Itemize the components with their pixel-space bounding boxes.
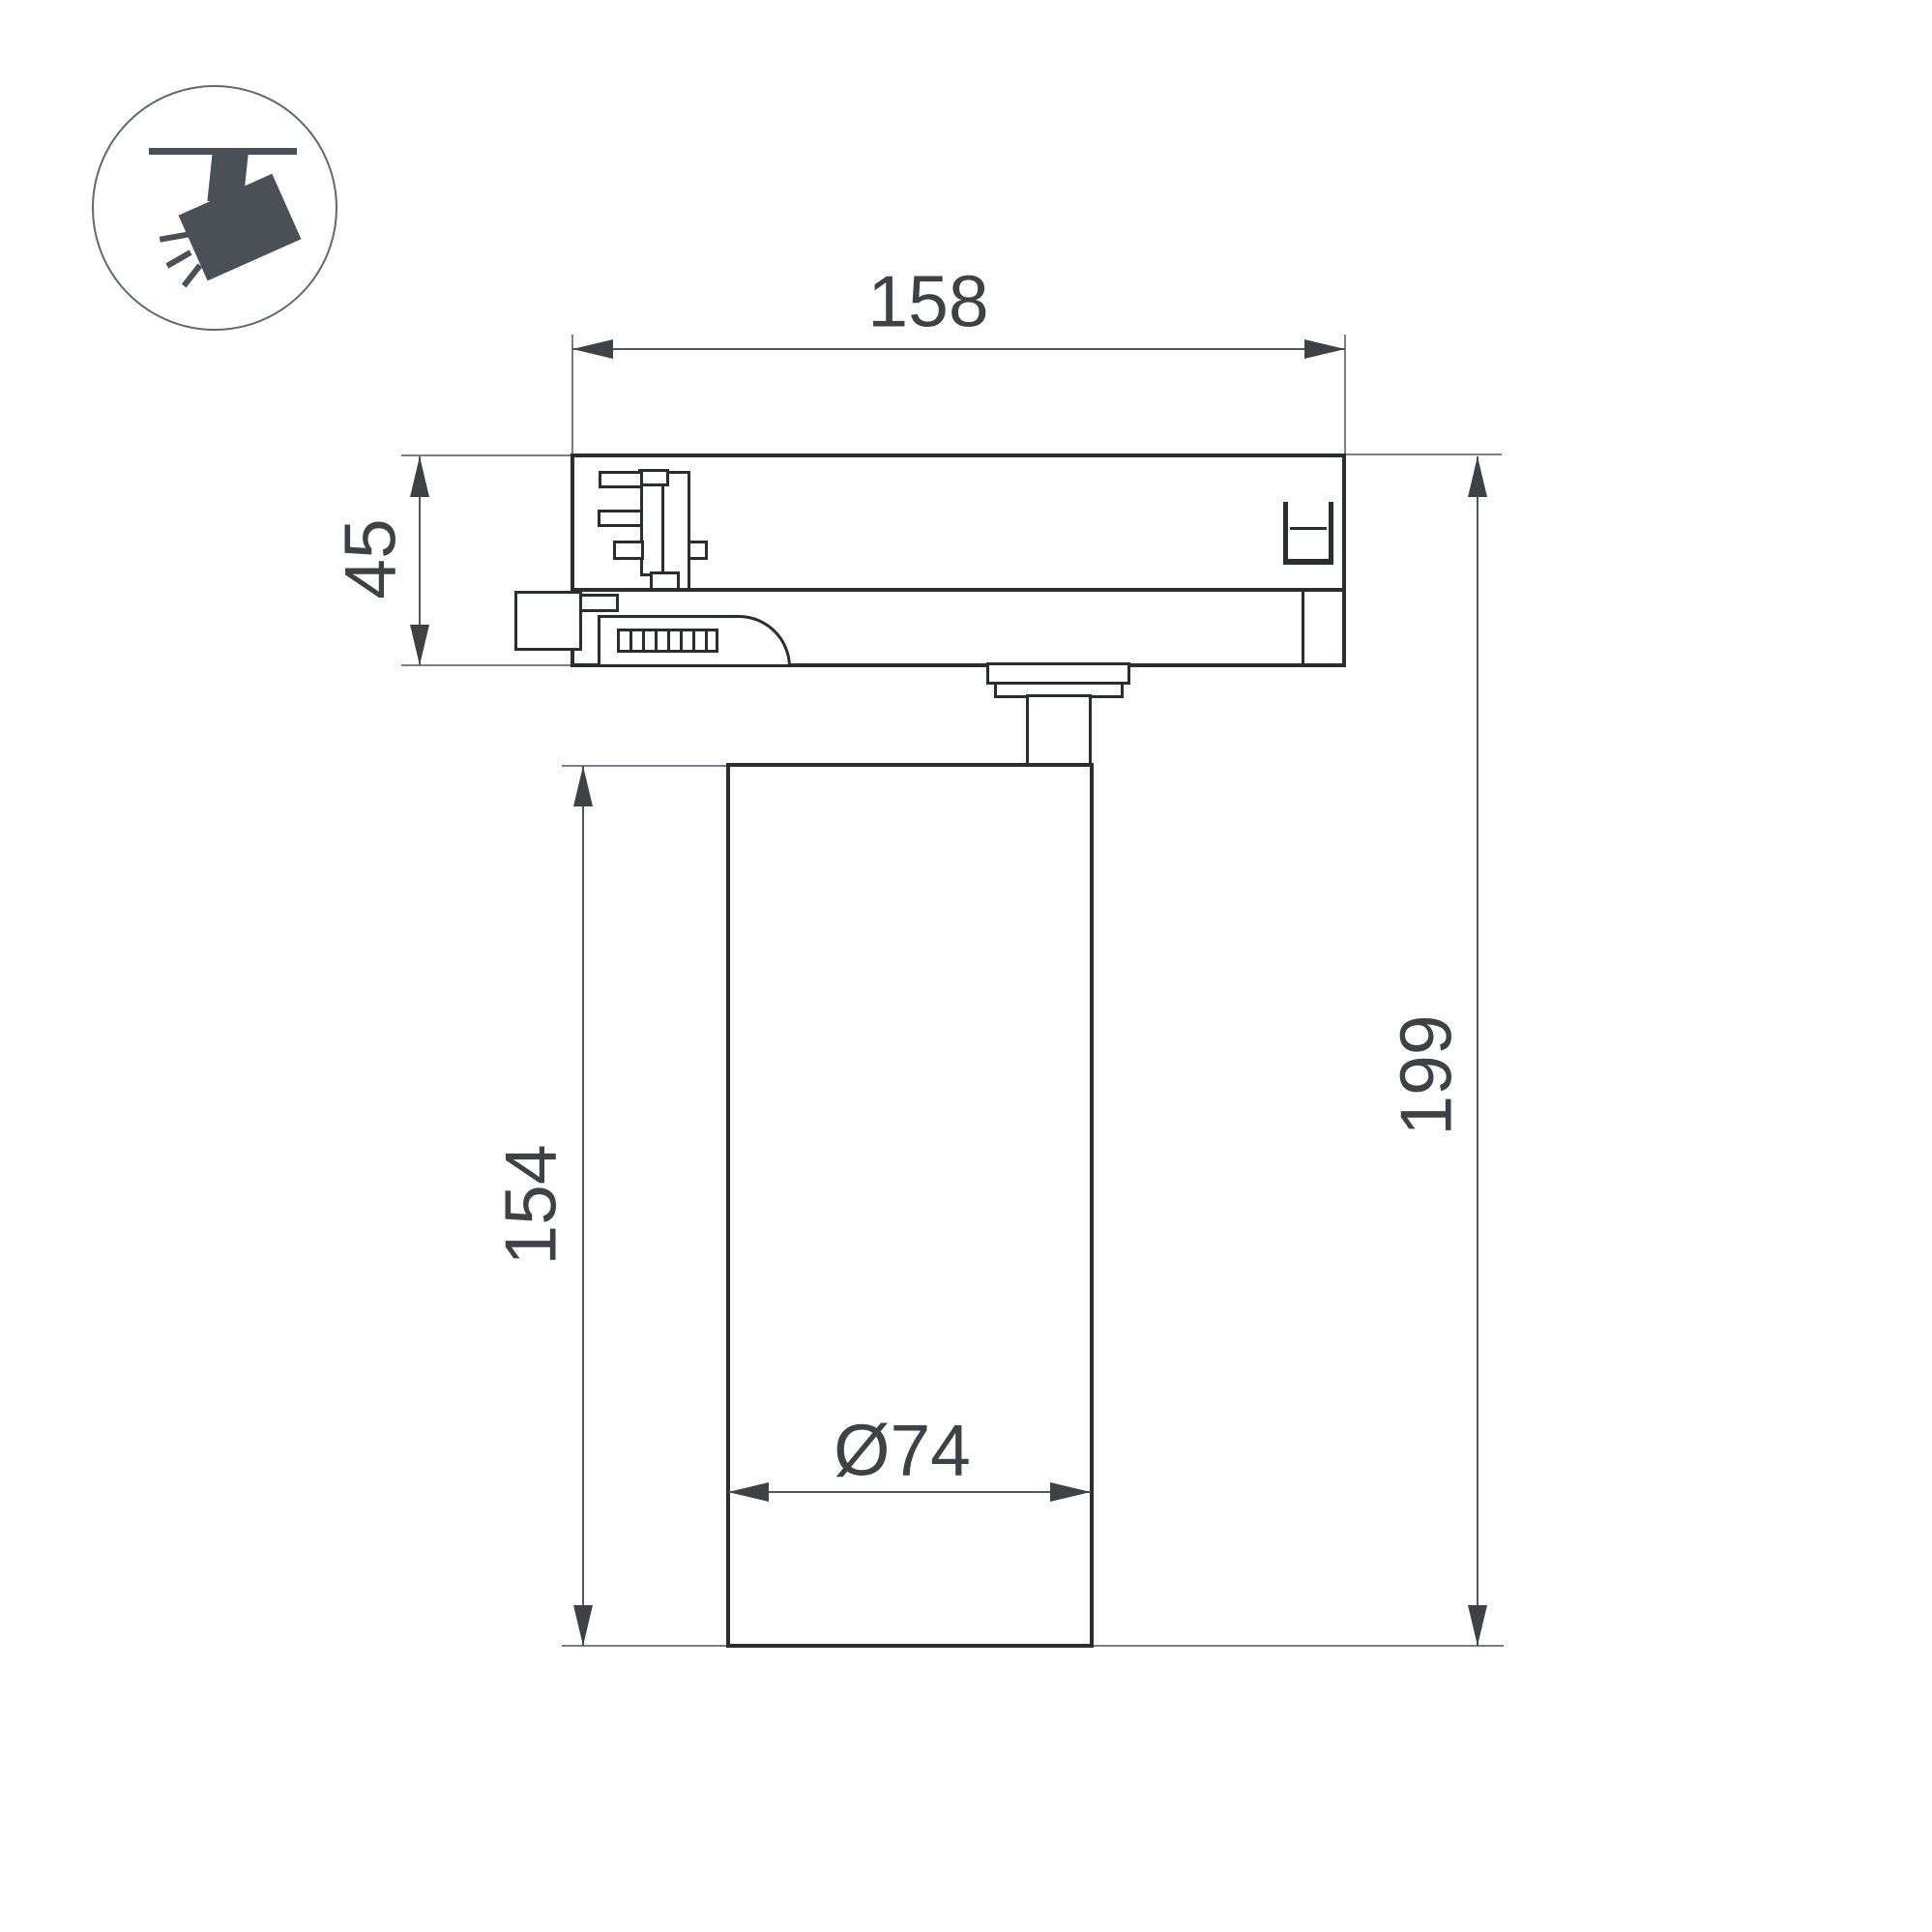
dim-arrow-154-down <box>573 1605 593 1646</box>
contact-foot <box>650 571 680 591</box>
contact-mast <box>640 474 664 576</box>
icon-light-ray <box>165 249 191 268</box>
dim-arrow-45-down <box>410 625 429 665</box>
dim-arrow-45-up <box>410 456 429 497</box>
dim-arrow-74-left <box>728 1482 769 1502</box>
adapter-u-clip-bar <box>1290 527 1327 530</box>
adapter-u-clip <box>1283 502 1333 565</box>
swivel-stem <box>1026 694 1092 770</box>
dim-label-body-height: 154 <box>495 1144 568 1265</box>
dim-line-199 <box>1477 456 1478 1646</box>
dim-label-track-width: 158 <box>867 266 988 338</box>
dimension-drawing-canvas: 158 45 154 199 Ø74 <box>0 0 1932 1932</box>
dim-arrow-199-up <box>1468 456 1487 497</box>
contact-prong <box>598 510 643 527</box>
lamp-body-cylinder <box>726 763 1094 1648</box>
lever-grip-ribs <box>617 629 718 653</box>
icon-light-ray <box>182 264 202 288</box>
contact-prong <box>613 541 644 560</box>
dim-arrow-158-right <box>1304 339 1345 359</box>
dim-arrow-158-left <box>572 339 613 359</box>
icon-light-ray <box>160 231 190 242</box>
latch-knob <box>514 591 582 651</box>
adapter-right-step-line <box>1302 590 1304 665</box>
latch-detail <box>579 594 619 612</box>
dim-arrow-74-right <box>1050 1482 1091 1502</box>
contact-prong <box>599 471 643 488</box>
ext-line-199-top <box>1345 454 1502 455</box>
track-spotlight-icon <box>92 85 337 331</box>
dim-line-74 <box>728 1491 1091 1493</box>
contact-notch <box>688 541 708 560</box>
dim-label-body-diameter: Ø74 <box>834 1415 971 1487</box>
dim-arrow-199-down <box>1468 1605 1487 1646</box>
ext-line-199-bottom <box>1094 1645 1504 1647</box>
dim-line-154 <box>582 766 584 1646</box>
dim-label-total-height: 199 <box>1390 1014 1463 1135</box>
dim-line-158 <box>572 348 1345 350</box>
dim-label-adapter-height: 45 <box>335 518 407 599</box>
dim-arrow-154-up <box>573 766 593 806</box>
